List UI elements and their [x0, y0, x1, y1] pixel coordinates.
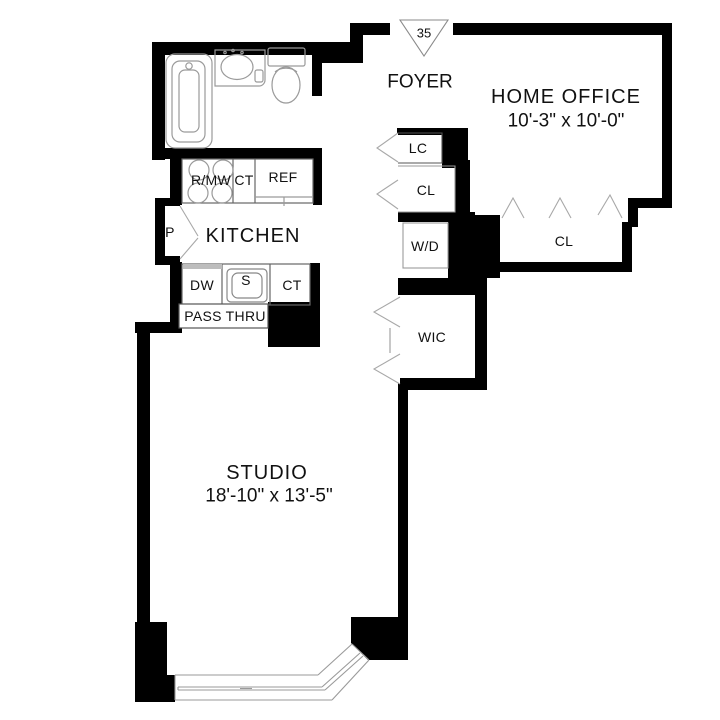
room-dims-studio: 18'-10" x 13'-5" [205, 487, 332, 506]
fixture-label-pass-thru: PASS THRU [184, 309, 266, 323]
door-swing-icons [180, 133, 622, 384]
fixture-label-sink: S [241, 273, 251, 287]
wic-door-swing-icon [374, 354, 400, 384]
lc-door-swing-icon [377, 133, 398, 162]
office-closet-door-swing-icon [598, 195, 622, 218]
toilet-icon [268, 48, 305, 103]
fixture-label-counter-upper: CT [234, 173, 253, 187]
fixture-label-pantry: P [165, 225, 175, 239]
bathtub-icon [166, 54, 212, 148]
closet-label-cl-office: CL [555, 234, 574, 248]
window-icon [175, 644, 369, 700]
pantry-door-swing-icon [180, 206, 198, 259]
floor-plan-drawing [0, 0, 720, 720]
room-dims-home-office: 10'-3" x 10'-0" [508, 112, 625, 131]
unit-number: 35 [417, 27, 431, 40]
fixture-label-range-microwave: R/MW [191, 173, 231, 187]
fixture-label-refrigerator: REF [269, 170, 298, 184]
wic-door-swing-icon [374, 297, 400, 327]
fixture-label-dishwasher: DW [190, 278, 214, 292]
closet-label-wic: WIC [418, 330, 446, 344]
room-label-home-office: HOME OFFICE [491, 87, 641, 107]
office-closet-door-swing-icon [502, 198, 524, 218]
closet-label-cl-foyer: CL [417, 183, 436, 197]
floor-plan: 35 FOYER HOME OFFICE 10'-3" x 10'-0" KIT… [0, 0, 720, 720]
room-label-kitchen: KITCHEN [206, 226, 301, 246]
office-closet-door-swing-icon [549, 198, 571, 218]
closet-label-wd: W/D [411, 239, 439, 253]
room-label-studio: STUDIO [226, 463, 308, 483]
cl-door-swing-icon [377, 180, 398, 209]
refrigerator-icon [255, 197, 313, 206]
closet-label-lc: LC [409, 141, 428, 155]
room-label-foyer: FOYER [387, 73, 452, 92]
fixture-label-counter-lower: CT [282, 278, 301, 292]
